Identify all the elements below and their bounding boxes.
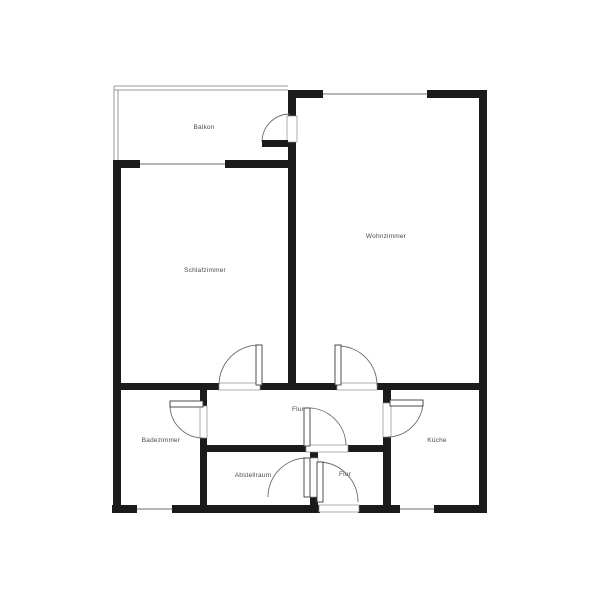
wall-segment (377, 383, 487, 390)
door-frame (287, 116, 297, 142)
door-leaf (304, 408, 310, 446)
wall-segment (383, 437, 391, 505)
room-label-abstellraum: Abstellraum (235, 472, 272, 479)
door-leaf (304, 458, 310, 497)
room-label-balkon: Balkon (193, 124, 214, 131)
wall-segment (200, 445, 306, 452)
door-leaf (335, 345, 341, 385)
room-label-flur: Flur (292, 406, 305, 413)
door-swing-arc (170, 405, 203, 438)
door-frame (383, 403, 391, 437)
door-leaf (262, 140, 288, 147)
wall-segment (113, 160, 140, 168)
door-swing-arc (219, 345, 259, 385)
wall-segment (113, 383, 219, 390)
wall-segment (427, 90, 487, 98)
floor-plan-svg: BalkonWohnzimmerSchlafzimmerBadezimmerFl… (0, 0, 600, 600)
floor-plan-page: BalkonWohnzimmerSchlafzimmerBadezimmerFl… (0, 0, 600, 600)
wall-segment (260, 383, 337, 390)
door-swing-arc (268, 458, 307, 497)
door-swing-arc (262, 114, 290, 142)
door-frame (306, 445, 348, 452)
wall-segment (225, 160, 296, 168)
door-leaf (390, 400, 423, 406)
room-label-schlafzimmer: Schlafzimmer (184, 267, 226, 274)
wall-segment (310, 452, 318, 458)
door-frame (319, 505, 359, 512)
door-leaf (170, 401, 203, 407)
room-label-flur-eingang: Flur (339, 471, 352, 478)
room-label-kueche: Küche (427, 437, 447, 444)
room-label-wohnzimmer: Wohnzimmer (366, 233, 407, 240)
door-leaf (256, 345, 262, 385)
wall-segment (288, 142, 296, 383)
wall-segment (288, 90, 323, 98)
door-swing-arc (307, 408, 346, 445)
wall-segment (288, 98, 296, 116)
wall-segment (479, 90, 487, 513)
balcony-railing (114, 86, 288, 160)
door-leaf (317, 462, 323, 502)
wall-segment (113, 160, 121, 513)
walls-layer (112, 90, 487, 513)
door-frame (219, 383, 260, 390)
wall-segment (358, 505, 400, 513)
door-frame (200, 406, 207, 438)
door-frame (337, 383, 377, 390)
door-swing-arc (338, 346, 377, 385)
wall-segment (172, 505, 320, 513)
wall-segment (434, 505, 487, 513)
door-swing-arc (387, 403, 423, 437)
door-swing-arc (320, 462, 358, 502)
room-label-badezimmer: Badezimmer (142, 437, 181, 444)
